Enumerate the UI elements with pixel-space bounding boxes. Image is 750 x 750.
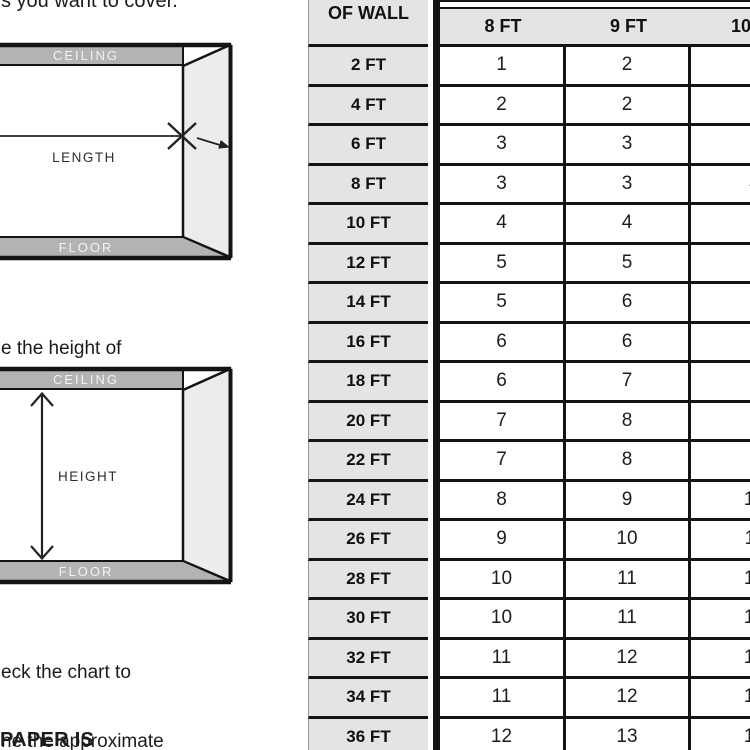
table-row: 5 6 6 <box>440 281 750 321</box>
data-cell: 13 <box>691 640 750 677</box>
intro-text-fragment: s you want to cover. <box>1 0 178 12</box>
table-row: 1 2 2 <box>440 44 750 84</box>
floor-label: FLOOR <box>59 240 114 255</box>
data-cell: 10 <box>440 561 566 598</box>
row-label-cell: 8 FT <box>308 166 428 206</box>
table-row: 10 11 12 <box>440 558 750 598</box>
table-row: 2 2 3 <box>440 84 750 124</box>
data-cell: 3 <box>691 87 750 124</box>
roll-count-grid: 8 FT 9 FT 10 FT 1 2 2 2 2 3 3 3 3 3 3 4 … <box>440 0 750 750</box>
length-measure-diagram: CEILING FLOOR LENGTH <box>0 42 235 261</box>
data-cell: 5 <box>691 205 750 242</box>
table-row: 11 12 14 <box>440 676 750 716</box>
data-cell: 12 <box>440 719 566 750</box>
data-cell: 7 <box>440 442 566 479</box>
row-label-cell: 36 FT <box>308 719 428 750</box>
data-cell: 10 <box>691 482 750 519</box>
data-cell: 6 <box>691 245 750 282</box>
data-cell: 8 <box>440 482 566 519</box>
data-cell: 4 <box>440 205 566 242</box>
data-cell: 5 <box>566 245 691 282</box>
table-row: 8 9 10 <box>440 479 750 519</box>
table-row: 6 7 8 <box>440 360 750 400</box>
data-cell: 11 <box>691 521 750 558</box>
row-label-cell: 34 FT <box>308 679 428 719</box>
data-cell: 11 <box>440 640 566 677</box>
floor-label: FLOOR <box>59 564 114 579</box>
row-label-cell: 30 FT <box>308 600 428 640</box>
row-label-cell: 12 FT <box>308 245 428 285</box>
row-label-cell: 4 FT <box>308 87 428 127</box>
data-cell: 6 <box>566 324 691 361</box>
data-cell: 2 <box>566 47 691 84</box>
table-row: 7 8 9 <box>440 439 750 479</box>
data-cell: 4 <box>566 205 691 242</box>
data-cell: 2 <box>691 47 750 84</box>
row-label-cell: 20 FT <box>308 403 428 443</box>
data-cell: 12 <box>566 640 691 677</box>
table-row: 4 4 5 <box>440 202 750 242</box>
data-cell: 3 <box>566 166 691 203</box>
data-cell: 12 <box>691 561 750 598</box>
height-label: HEIGHT <box>58 469 118 484</box>
data-cell: 4 <box>691 166 750 203</box>
data-cell: 3 <box>566 126 691 163</box>
data-cell: 6 <box>440 363 566 400</box>
footer-heading-fragment: PAPER IS <box>0 729 94 750</box>
ceiling-label: CEILING <box>53 48 119 63</box>
row-label-cell: 2 FT <box>308 47 428 87</box>
table-row: 3 3 4 <box>440 163 750 203</box>
table-row: 7 8 9 <box>440 400 750 440</box>
data-cell: 2 <box>566 87 691 124</box>
row-label-cell: 10 FT <box>308 205 428 245</box>
data-cell: 9 <box>440 521 566 558</box>
text-line: eck the chart to <box>1 661 190 684</box>
table-row: 10 11 12 <box>440 597 750 637</box>
corner-header-cell: OF WALL <box>308 0 428 47</box>
wall-length-label-column: OF WALL 2 FT 4 FT 6 FT 8 FT 10 FT 12 FT … <box>308 0 428 750</box>
table-row: 11 12 13 <box>440 637 750 677</box>
data-cell: 1 <box>440 47 566 84</box>
row-label-cell: 32 FT <box>308 640 428 680</box>
data-cell: 8 <box>566 403 691 440</box>
row-label-cell: 16 FT <box>308 324 428 364</box>
column-header: 9 FT <box>566 16 691 37</box>
room-side-wall <box>183 45 230 257</box>
data-cell: 8 <box>691 363 750 400</box>
data-cell: 10 <box>566 521 691 558</box>
data-cell: 7 <box>566 363 691 400</box>
data-cell: 14 <box>691 679 750 716</box>
row-label-cell: 22 FT <box>308 442 428 482</box>
text-line: e the height of <box>1 336 121 361</box>
data-cell: 9 <box>691 442 750 479</box>
data-cell: 9 <box>691 403 750 440</box>
room-side-wall <box>183 369 230 581</box>
data-cell: 11 <box>566 600 691 637</box>
row-label-cell: 6 FT <box>308 126 428 166</box>
data-cell: 13 <box>566 719 691 750</box>
data-cell: 11 <box>566 561 691 598</box>
column-header: 8 FT <box>440 16 566 37</box>
wallpaper-estimator-page: s you want to cover. CEILING FLOOR LENGT… <box>0 0 750 750</box>
data-cell: 6 <box>691 284 750 321</box>
table-row: 5 5 6 <box>440 242 750 282</box>
data-cell: 7 <box>440 403 566 440</box>
table-row: 12 13 15 <box>440 716 750 750</box>
data-cell: 7 <box>691 324 750 361</box>
table-row: 9 10 11 <box>440 518 750 558</box>
height-measure-diagram: CEILING FLOOR HEIGHT <box>0 366 235 585</box>
row-label-cell: 24 FT <box>308 482 428 522</box>
data-cell: 9 <box>566 482 691 519</box>
data-cell: 8 <box>566 442 691 479</box>
table-row: 6 6 7 <box>440 321 750 361</box>
column-header: 10 FT <box>691 16 750 37</box>
column-headers-row: 8 FT 9 FT 10 FT <box>440 9 750 44</box>
data-cell: 6 <box>440 324 566 361</box>
row-label-cell: 28 FT <box>308 561 428 601</box>
row-label-cell: 26 FT <box>308 521 428 561</box>
data-cell: 11 <box>440 679 566 716</box>
row-label-cell: 18 FT <box>308 363 428 403</box>
data-cell: 6 <box>566 284 691 321</box>
data-cell: 2 <box>440 87 566 124</box>
data-cell: 3 <box>691 126 750 163</box>
length-label: LENGTH <box>52 150 116 165</box>
data-cell: 3 <box>440 126 566 163</box>
ceiling-label: CEILING <box>53 372 119 387</box>
data-cell: 15 <box>691 719 750 750</box>
row-label-cell: 14 FT <box>308 284 428 324</box>
data-cell: 5 <box>440 284 566 321</box>
data-cell: 12 <box>566 679 691 716</box>
data-cell: 3 <box>440 166 566 203</box>
data-cell: 12 <box>691 600 750 637</box>
data-cell: 5 <box>440 245 566 282</box>
data-cell: 10 <box>440 600 566 637</box>
table-thick-divider <box>433 0 440 750</box>
table-row: 3 3 3 <box>440 123 750 163</box>
